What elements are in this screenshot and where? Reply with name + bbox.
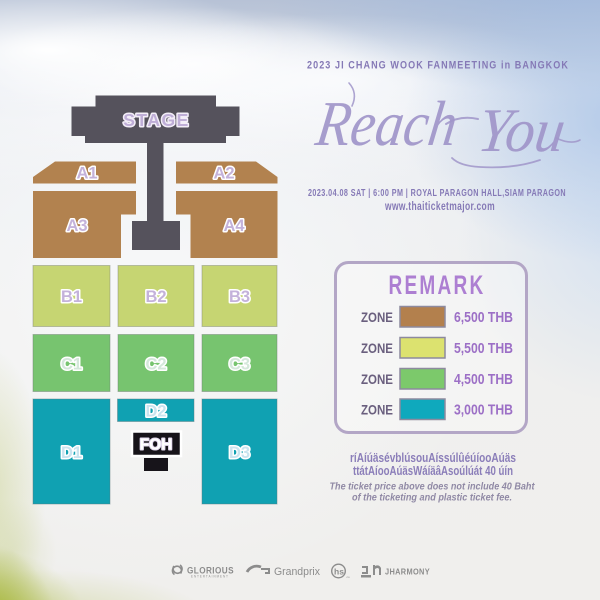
svg-text:Reach: Reach	[311, 88, 462, 159]
svg-text:You: You	[474, 96, 570, 165]
svg-text:B2: B2	[145, 288, 166, 306]
svg-text:JHARMONY: JHARMONY	[385, 567, 430, 577]
svg-text:2023 JI CHANG WOOK FANMEETING: 2023 JI CHANG WOOK FANMEETING in BANGKOK	[307, 60, 569, 72]
svg-text:C1: C1	[61, 356, 82, 374]
svg-text:B3: B3	[229, 288, 250, 306]
svg-text:D2: D2	[145, 403, 166, 421]
svg-text:C3: C3	[229, 356, 250, 374]
svg-text:5,500 THB: 5,500 THB	[454, 340, 513, 357]
svg-text:STAGE: STAGE	[123, 110, 190, 130]
svg-text:A3: A3	[66, 217, 87, 235]
svg-text:6,500 THB: 6,500 THB	[454, 309, 513, 326]
svg-text:of the ticketing and plastic t: of the ticketing and plastic ticket fee.	[352, 492, 512, 504]
svg-text:ZONE: ZONE	[361, 310, 393, 325]
svg-text:ZONE: ZONE	[361, 372, 393, 387]
svg-text:ZONE: ZONE	[361, 403, 393, 418]
svg-text:2023.04.08 SAT | 6:00 PM | ROY: 2023.04.08 SAT | 6:00 PM | ROYAL PARAGON…	[308, 188, 566, 199]
svg-text:3,000 THB: 3,000 THB	[454, 402, 513, 419]
svg-text:co: co	[347, 575, 351, 579]
svg-text:ríAíúäsévblúsouAíssúlûéúíooAúä: ríAíúäsévblúsouAíssúlûéúíooAúäs	[350, 451, 516, 465]
svg-text:B1: B1	[61, 288, 82, 306]
svg-text:A4: A4	[223, 217, 245, 235]
svg-text:FOH: FOH	[140, 437, 173, 454]
svg-text:Grandprix: Grandprix	[274, 566, 320, 578]
svg-text:A2: A2	[213, 165, 234, 183]
svg-text:www.thaiticketmajor.com: www.thaiticketmajor.com	[384, 201, 495, 213]
svg-text:REMARK: REMARK	[389, 270, 486, 300]
svg-text:D1: D1	[61, 444, 82, 462]
svg-text:4,500 THB: 4,500 THB	[454, 371, 513, 388]
svg-text:ZONE: ZONE	[361, 341, 393, 356]
svg-text:hs: hs	[334, 567, 344, 577]
svg-text:ENTERTAINMENT: ENTERTAINMENT	[191, 575, 229, 579]
svg-text:D3: D3	[229, 444, 250, 462]
svg-text:A1: A1	[76, 165, 97, 183]
svg-text:C2: C2	[145, 356, 166, 374]
svg-text:ttátAíooAúäsWáíäâAsoúlúát 40 ú: ttátAíooAúäsWáíäâAsoúlúát 40 úín	[353, 464, 513, 478]
